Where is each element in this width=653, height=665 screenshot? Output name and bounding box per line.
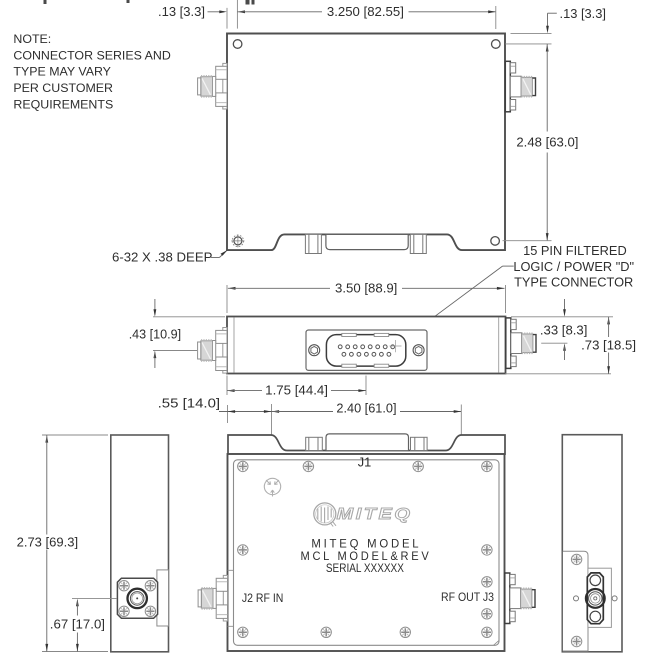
svg-text:15 PIN FILTERED: 15 PIN FILTERED [523,243,627,258]
svg-text:LOGIC / POWER "D": LOGIC / POWER "D" [513,259,634,274]
svg-text:CONNECTOR SERIES AND: CONNECTOR SERIES AND [13,48,170,62]
svg-text:.13 [3.3]: .13 [3.3] [158,4,205,19]
svg-text:1.75 [44.4]: 1.75 [44.4] [265,383,328,398]
svg-text:RF OUT J3: RF OUT J3 [441,590,494,604]
svg-text:6-32 X .38 DEEP: 6-32 X .38 DEEP [112,250,213,265]
svg-text:MITEQ: MITEQ [337,506,413,523]
svg-text:REQUIREMENTS: REQUIREMENTS [13,98,113,112]
svg-text:TYPE CONNECTOR: TYPE CONNECTOR [514,274,633,289]
svg-text:.55 [14.0]: .55 [14.0] [158,396,221,411]
svg-text:J2 RF IN: J2 RF IN [242,591,284,605]
svg-text:.43 [10.9]: .43 [10.9] [129,327,181,342]
svg-text:NOTE:: NOTE: [13,32,51,46]
svg-text:PER CUSTOMER: PER CUSTOMER [13,81,113,95]
svg-text:TYPE MAY VARY: TYPE MAY VARY [13,65,111,79]
svg-text:J1: J1 [358,455,372,470]
svg-text:.67 [17.0]: .67 [17.0] [50,617,105,632]
svg-text:3.250 [82.55]: 3.250 [82.55] [327,4,404,19]
svg-text:.73 [18.5]: .73 [18.5] [581,337,636,352]
svg-text:2.48 [63.0]: 2.48 [63.0] [516,134,578,149]
svg-text:SERIAL XXXXXX: SERIAL XXXXXX [326,561,404,575]
svg-text:3.50 [88.9]: 3.50 [88.9] [335,280,397,295]
svg-text:2.40 [61.0]: 2.40 [61.0] [336,401,396,416]
svg-text:2.73 [69.3]: 2.73 [69.3] [17,534,79,549]
svg-text:.33 [8.3]: .33 [8.3] [540,323,588,338]
svg-text:.13 [3.3]: .13 [3.3] [560,6,607,21]
